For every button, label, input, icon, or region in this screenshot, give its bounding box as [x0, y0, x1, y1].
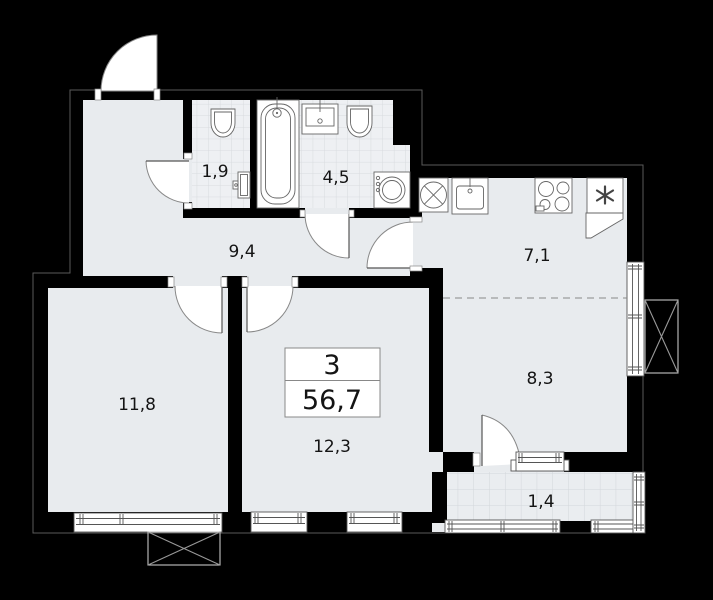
- wall-segment: [33, 276, 173, 288]
- wall-segment: [48, 512, 75, 532]
- window-balcony-door-side: [511, 452, 569, 471]
- jamb: [154, 89, 160, 100]
- wall-segment: [157, 90, 422, 100]
- wall-segment: [429, 268, 443, 452]
- jamb: [292, 277, 298, 287]
- kitchen-sink-icon: [452, 178, 488, 214]
- jamb: [184, 203, 192, 209]
- rooms-count-value: 3: [323, 350, 340, 381]
- wall-segment: [183, 208, 305, 218]
- jamb: [168, 277, 174, 287]
- jamb: [410, 266, 422, 271]
- room-label-living: 8,3: [526, 369, 553, 389]
- wall-segment: [627, 178, 643, 262]
- washbasin-icon: [302, 100, 338, 134]
- wall-segment: [222, 512, 252, 532]
- floor-plan: 1,9 4,5 9,4 7,1 8,3 11,8 12,3 1,4 3 56,7: [0, 0, 713, 600]
- total-area-value: 56,7: [302, 385, 362, 416]
- wall-segment: [228, 288, 242, 512]
- wall-segment: [183, 100, 192, 159]
- window-living-right: [627, 262, 644, 376]
- room-label-bathroom: 4,5: [322, 168, 349, 188]
- room-label-kitchen: 7,1: [523, 246, 550, 266]
- room-label-hallway: 9,4: [228, 242, 255, 262]
- wall-segment: [307, 512, 348, 532]
- stove-icon: [535, 178, 572, 213]
- wall-parapet: [560, 521, 592, 533]
- room-label-wc: 1,9: [201, 162, 228, 182]
- jamb: [242, 277, 248, 287]
- floor-plan-canvas: 1,9 4,5 9,4 7,1 8,3 11,8 12,3 1,4 3 56,7: [0, 0, 713, 600]
- jamb: [95, 89, 101, 100]
- wall-segment: [349, 208, 410, 218]
- room-label-balcony: 1,4: [527, 492, 554, 512]
- toilet-icon: [347, 106, 372, 137]
- wall-segment: [33, 274, 48, 532]
- jamb: [184, 153, 192, 159]
- bathtub-icon: [257, 97, 299, 208]
- wall-segment: [443, 452, 474, 472]
- jamb: [221, 277, 227, 287]
- window-bedroom1: [74, 513, 222, 532]
- wall-segment: [422, 165, 643, 178]
- toilet-icon: [211, 109, 235, 137]
- jamb: [410, 217, 422, 222]
- room-label-bedroom1: 11,8: [118, 395, 156, 415]
- wall-segment: [627, 452, 643, 472]
- balcony-glazing-right: [633, 472, 645, 533]
- wall-segment: [70, 100, 83, 275]
- jamb: [473, 453, 480, 466]
- ventilation-icon: [419, 178, 448, 212]
- window-bedroom2-left: [251, 512, 307, 532]
- wall-segment: [627, 375, 643, 453]
- wall-segment: [432, 472, 447, 523]
- wall-segment: [402, 512, 432, 532]
- window-bedroom2-right: [347, 512, 402, 532]
- summary-box: 3 56,7: [285, 348, 380, 417]
- balcony-glazing-bottom-left: [445, 520, 560, 533]
- jamb: [349, 210, 354, 217]
- washing-machine-icon: [374, 172, 410, 208]
- jamb: [300, 210, 305, 217]
- wall-pier: [393, 100, 422, 145]
- room-label-bedroom2: 12,3: [313, 437, 351, 457]
- wall-segment: [564, 452, 627, 472]
